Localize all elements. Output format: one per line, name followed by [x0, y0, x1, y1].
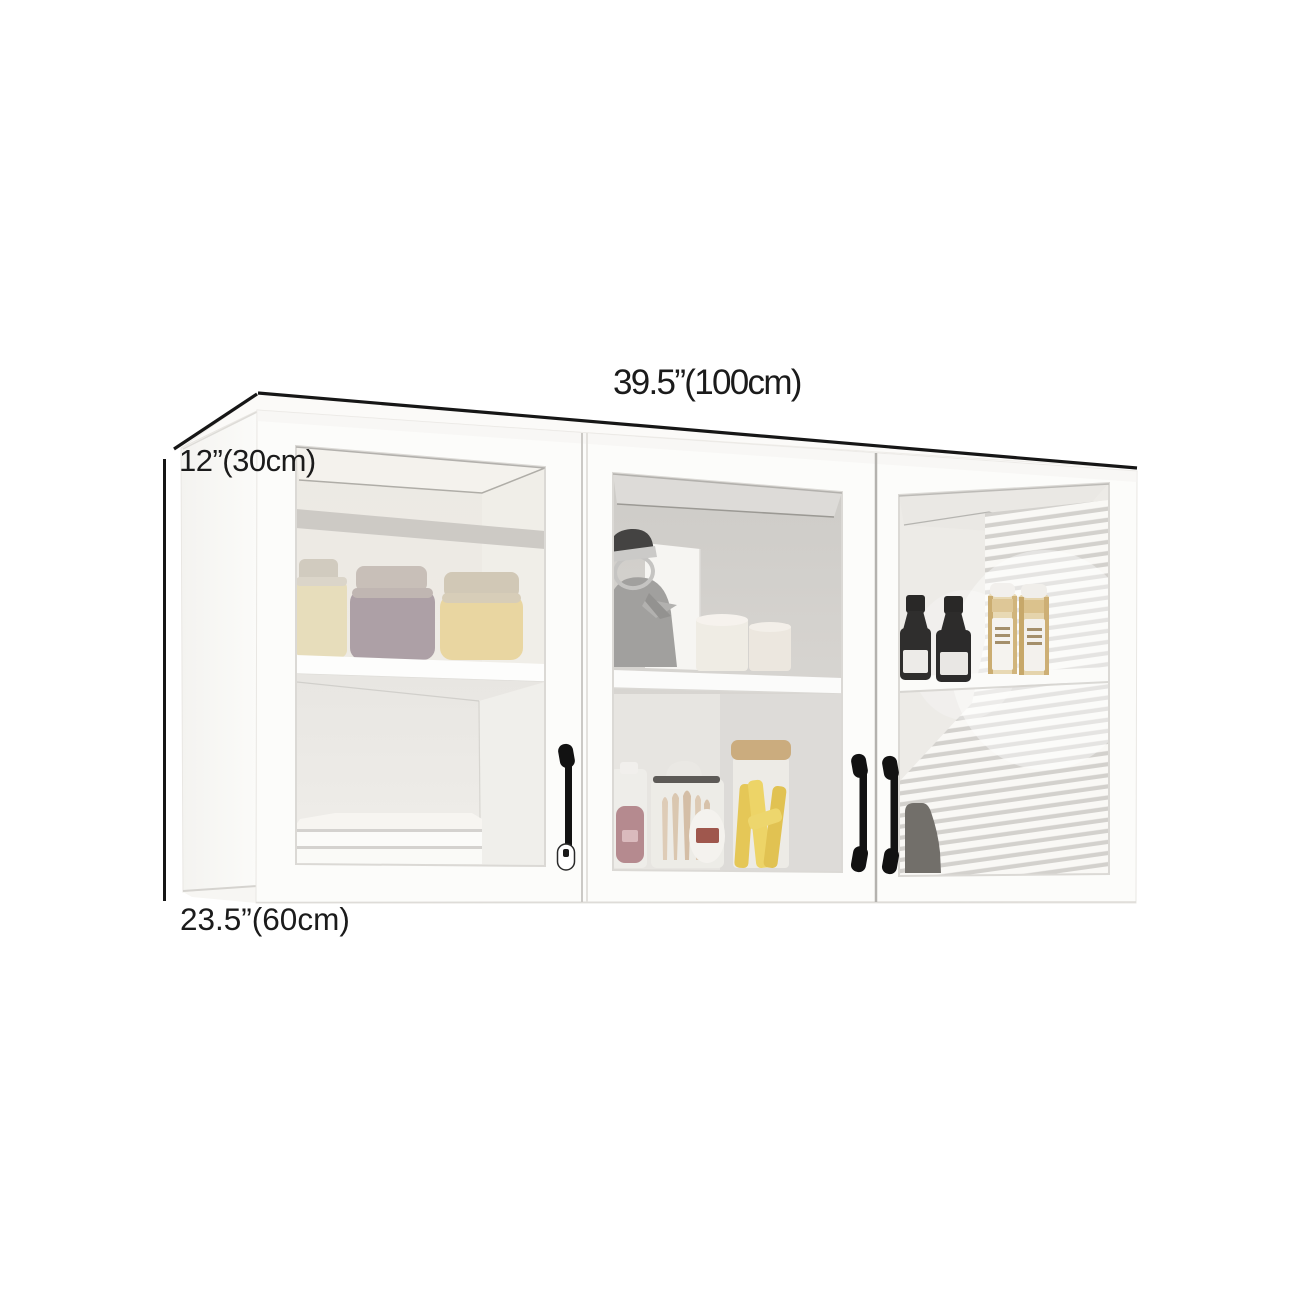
- svg-text:12”(30cm): 12”(30cm): [179, 443, 316, 478]
- svg-text:39.5”(100cm): 39.5”(100cm): [613, 363, 801, 402]
- svg-text:23.5”(60cm): 23.5”(60cm): [180, 901, 350, 937]
